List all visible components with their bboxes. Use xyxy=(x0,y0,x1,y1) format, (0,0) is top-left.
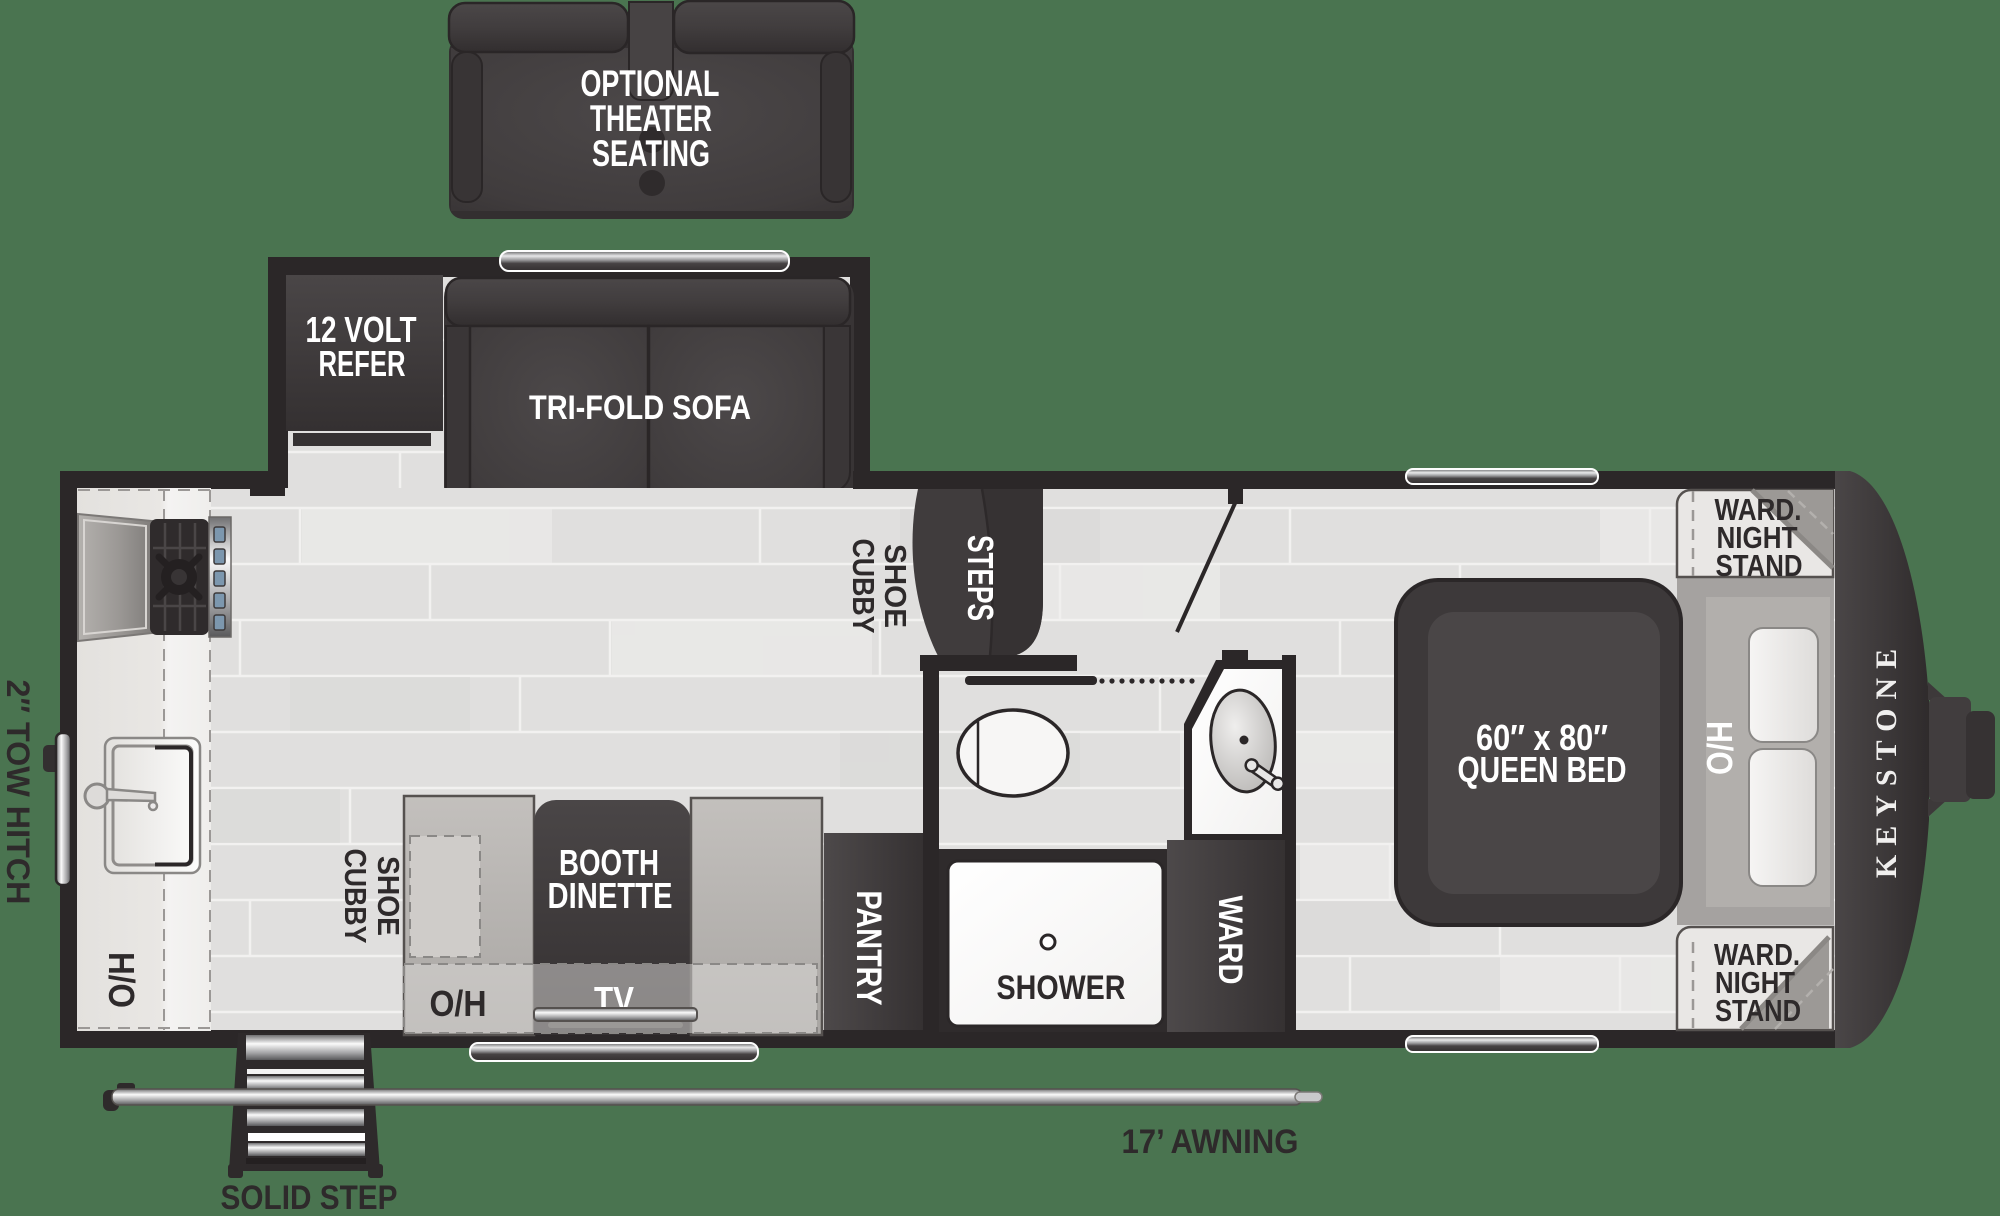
svg-text:H/O: H/O xyxy=(1699,721,1740,775)
svg-text:KEYSTONE: KEYSTONE xyxy=(1870,640,1903,878)
svg-text:SHOE: SHOE xyxy=(878,544,913,628)
svg-text:QUEEN BED: QUEEN BED xyxy=(1458,749,1627,790)
svg-text:PANTRY: PANTRY xyxy=(849,891,888,1006)
svg-text:STAND: STAND xyxy=(1716,548,1803,583)
svg-text:REFER: REFER xyxy=(319,343,406,384)
svg-text:2″ TOW HITCH: 2″ TOW HITCH xyxy=(0,680,36,905)
svg-text:WARD: WARD xyxy=(1211,896,1249,985)
svg-text:O/H: O/H xyxy=(430,983,487,1024)
svg-text:CUBBY: CUBBY xyxy=(338,849,373,944)
svg-text:SOLID STEP: SOLID STEP xyxy=(221,1179,398,1216)
svg-text:SHOWER: SHOWER xyxy=(997,969,1126,1007)
svg-text:STAND: STAND xyxy=(1715,993,1801,1028)
svg-text:TRI-FOLD SOFA: TRI-FOLD SOFA xyxy=(529,389,751,427)
svg-text:SEATING: SEATING xyxy=(592,133,710,174)
svg-text:SHOE: SHOE xyxy=(371,856,406,936)
svg-text:CUBBY: CUBBY xyxy=(846,539,881,634)
svg-text:H/O: H/O xyxy=(101,952,142,1008)
svg-text:STEPS: STEPS xyxy=(960,535,1001,621)
svg-text:DINETTE: DINETTE xyxy=(548,875,673,916)
svg-text:17’ AWNING: 17’ AWNING xyxy=(1122,1123,1299,1161)
